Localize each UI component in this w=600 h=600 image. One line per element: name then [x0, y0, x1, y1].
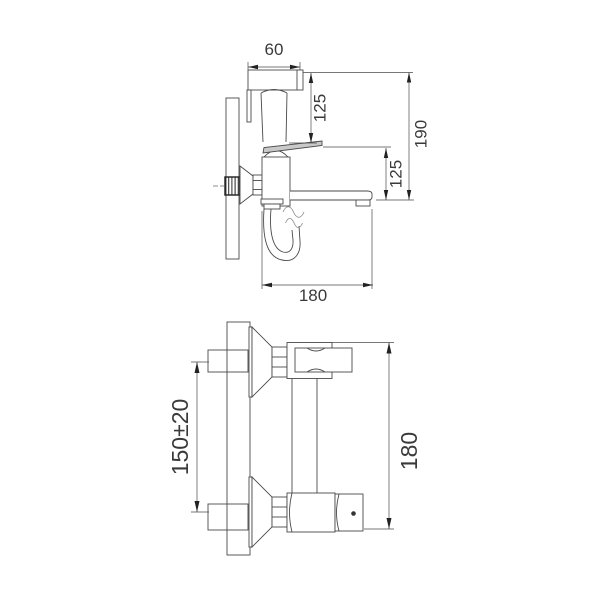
dim-label-125-upper: 125	[310, 94, 329, 122]
connector-nut	[253, 175, 262, 195]
arrow-left	[262, 283, 272, 287]
wall-section	[227, 322, 250, 555]
technical-drawing: 60 125 125 190	[0, 0, 600, 600]
arrow-right	[290, 65, 300, 69]
dim-label-60: 60	[265, 40, 284, 59]
wall-thread-pipe	[225, 177, 240, 195]
lever-handle-front	[295, 348, 352, 372]
sprayer-head	[248, 70, 303, 90]
sprayer-handle-left	[261, 93, 263, 142]
eccentric-cone-top	[252, 327, 272, 397]
arrow-up	[195, 362, 200, 373]
supply-pipe-bottom	[208, 504, 248, 530]
aerator-dot	[351, 511, 356, 516]
hex-nut-top	[272, 347, 287, 377]
sprayer-handle-right	[286, 93, 287, 142]
supply-pipe-top	[208, 350, 248, 372]
side-view: 60 125 125 190	[213, 40, 430, 305]
arrow-up	[309, 73, 313, 83]
dim-label-150-20: 150±20	[167, 399, 193, 476]
dim-sprayer-width: 60	[248, 40, 300, 70]
arrow-up	[387, 343, 392, 354]
valve-body-bottom	[287, 493, 335, 532]
spout-front	[335, 494, 363, 531]
sprayer-clip	[247, 90, 251, 122]
arrow-left	[248, 65, 258, 69]
hose-break-mark	[286, 219, 303, 228]
arrow-down	[384, 190, 388, 200]
shower-hose-inner	[271, 209, 294, 252]
front-view: 150±20 180	[167, 322, 422, 555]
arrow-up	[407, 73, 411, 83]
dim-spout-depth: 180	[262, 209, 373, 305]
eccentric-cone	[240, 166, 253, 204]
dim-supply-distance: 150±20	[167, 362, 209, 512]
aerator	[356, 200, 370, 206]
arrow-down	[195, 501, 200, 512]
hose-break-mark	[283, 207, 304, 218]
arrow-up	[384, 148, 388, 158]
hex-nut-bottom	[272, 497, 287, 527]
shower-hose-outer	[264, 209, 301, 261]
dim-label-180-front: 180	[396, 432, 422, 470]
arrow-down	[387, 518, 392, 529]
hose-connector	[261, 199, 283, 204]
spout	[290, 191, 372, 200]
dim-label-180-side: 180	[299, 286, 327, 305]
drawing-sheet: 60 125 125 190	[0, 0, 600, 600]
arrow-down	[309, 133, 313, 143]
hose-nut	[264, 204, 280, 209]
eccentric-cone-bottom	[252, 477, 272, 547]
dim-label-125-lower: 125	[386, 160, 405, 188]
dim-label-190: 190	[411, 120, 430, 148]
arrow-right	[363, 283, 373, 287]
arrow-down	[407, 190, 411, 200]
